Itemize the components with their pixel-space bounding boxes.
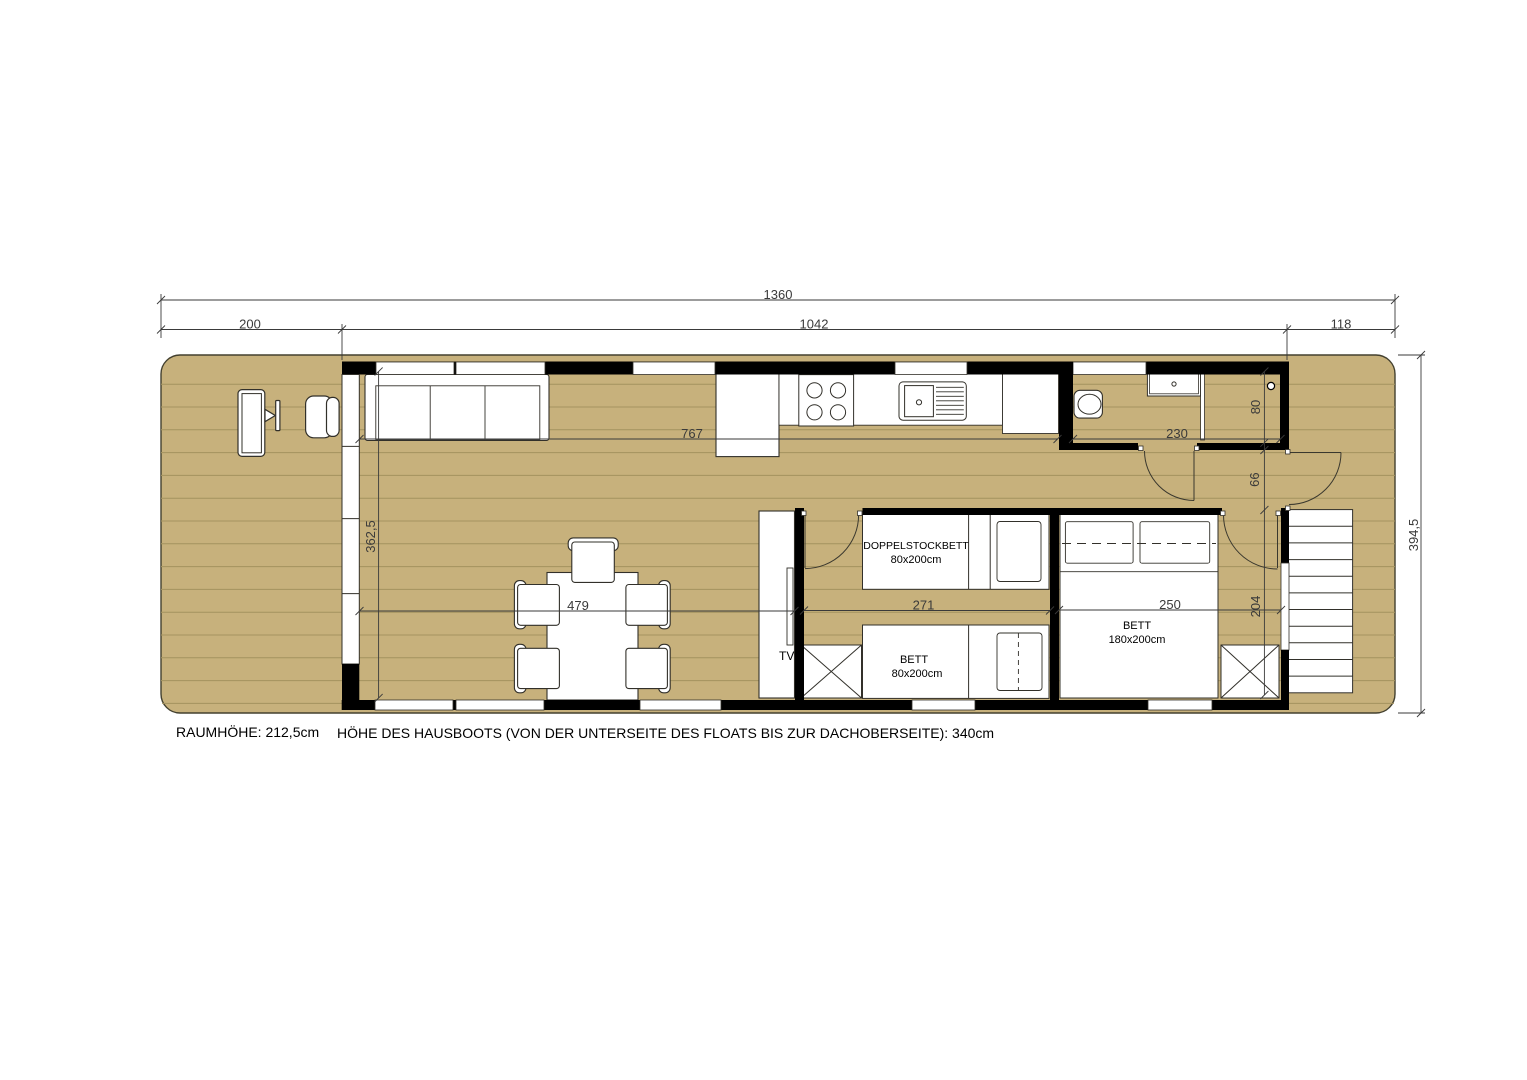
svg-text:200: 200 bbox=[239, 317, 261, 332]
svg-text:80: 80 bbox=[1248, 400, 1263, 414]
svg-text:DOPPELSTOCKBETT: DOPPELSTOCKBETT bbox=[863, 540, 969, 552]
svg-text:RAUMHÖHE: 212,5cm: RAUMHÖHE: 212,5cm bbox=[176, 723, 319, 740]
svg-text:767: 767 bbox=[681, 426, 703, 441]
svg-text:180x200cm: 180x200cm bbox=[1109, 634, 1166, 646]
svg-text:230: 230 bbox=[1166, 426, 1188, 441]
svg-text:118: 118 bbox=[1331, 317, 1352, 332]
svg-text:394,5: 394,5 bbox=[1406, 519, 1421, 552]
svg-text:TV: TV bbox=[779, 649, 794, 663]
svg-text:BETT: BETT bbox=[1123, 620, 1151, 632]
svg-text:66: 66 bbox=[1247, 472, 1262, 486]
svg-text:271: 271 bbox=[913, 598, 935, 613]
svg-text:HÖHE DES HAUSBOOTS (VON DER UN: HÖHE DES HAUSBOOTS (VON DER UNTERSEITE D… bbox=[337, 724, 994, 741]
svg-text:362,5: 362,5 bbox=[363, 520, 378, 553]
svg-text:479: 479 bbox=[567, 598, 589, 613]
svg-text:80x200cm: 80x200cm bbox=[891, 554, 942, 566]
svg-text:204: 204 bbox=[1248, 596, 1263, 618]
svg-text:80x200cm: 80x200cm bbox=[892, 668, 943, 680]
svg-text:1042: 1042 bbox=[800, 317, 829, 332]
svg-text:1360: 1360 bbox=[764, 287, 793, 302]
svg-text:250: 250 bbox=[1159, 597, 1181, 612]
svg-text:BETT: BETT bbox=[900, 654, 928, 666]
